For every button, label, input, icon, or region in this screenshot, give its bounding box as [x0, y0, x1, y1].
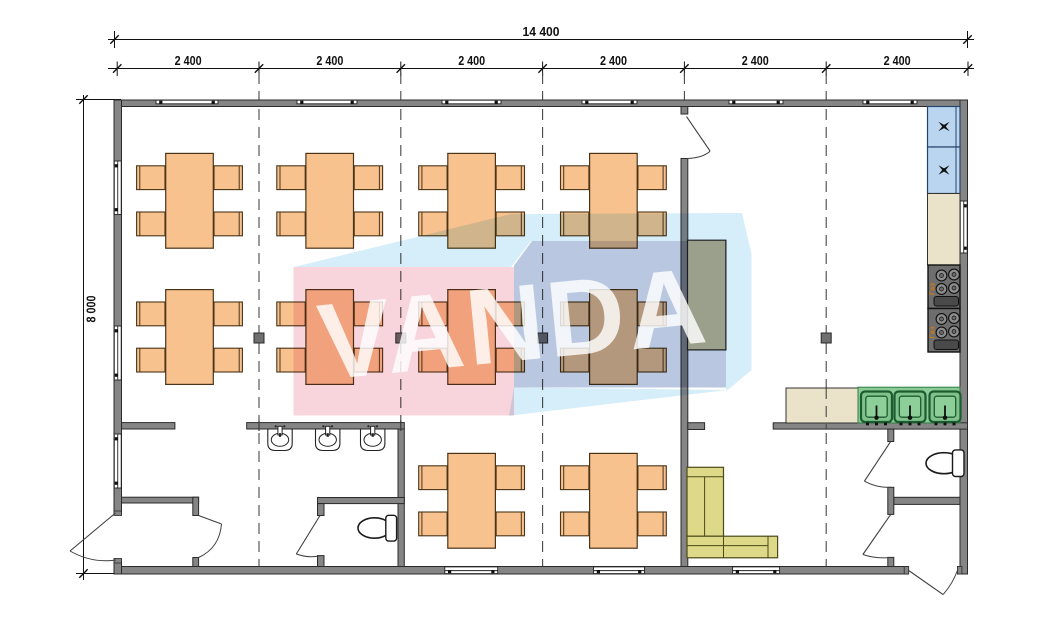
svg-text:2 400: 2 400 — [742, 53, 769, 68]
svg-text:2 400: 2 400 — [600, 53, 627, 68]
svg-text:Газ: Газ — [928, 326, 937, 338]
svg-text:14 400: 14 400 — [523, 24, 560, 39]
svg-text:2 400: 2 400 — [458, 53, 485, 68]
svg-text:2 400: 2 400 — [884, 53, 911, 68]
svg-text:8 000: 8 000 — [84, 296, 99, 323]
svg-text:Газ: Газ — [928, 283, 937, 295]
svg-text:2 400: 2 400 — [175, 53, 202, 68]
svg-text:2 400: 2 400 — [316, 53, 343, 68]
